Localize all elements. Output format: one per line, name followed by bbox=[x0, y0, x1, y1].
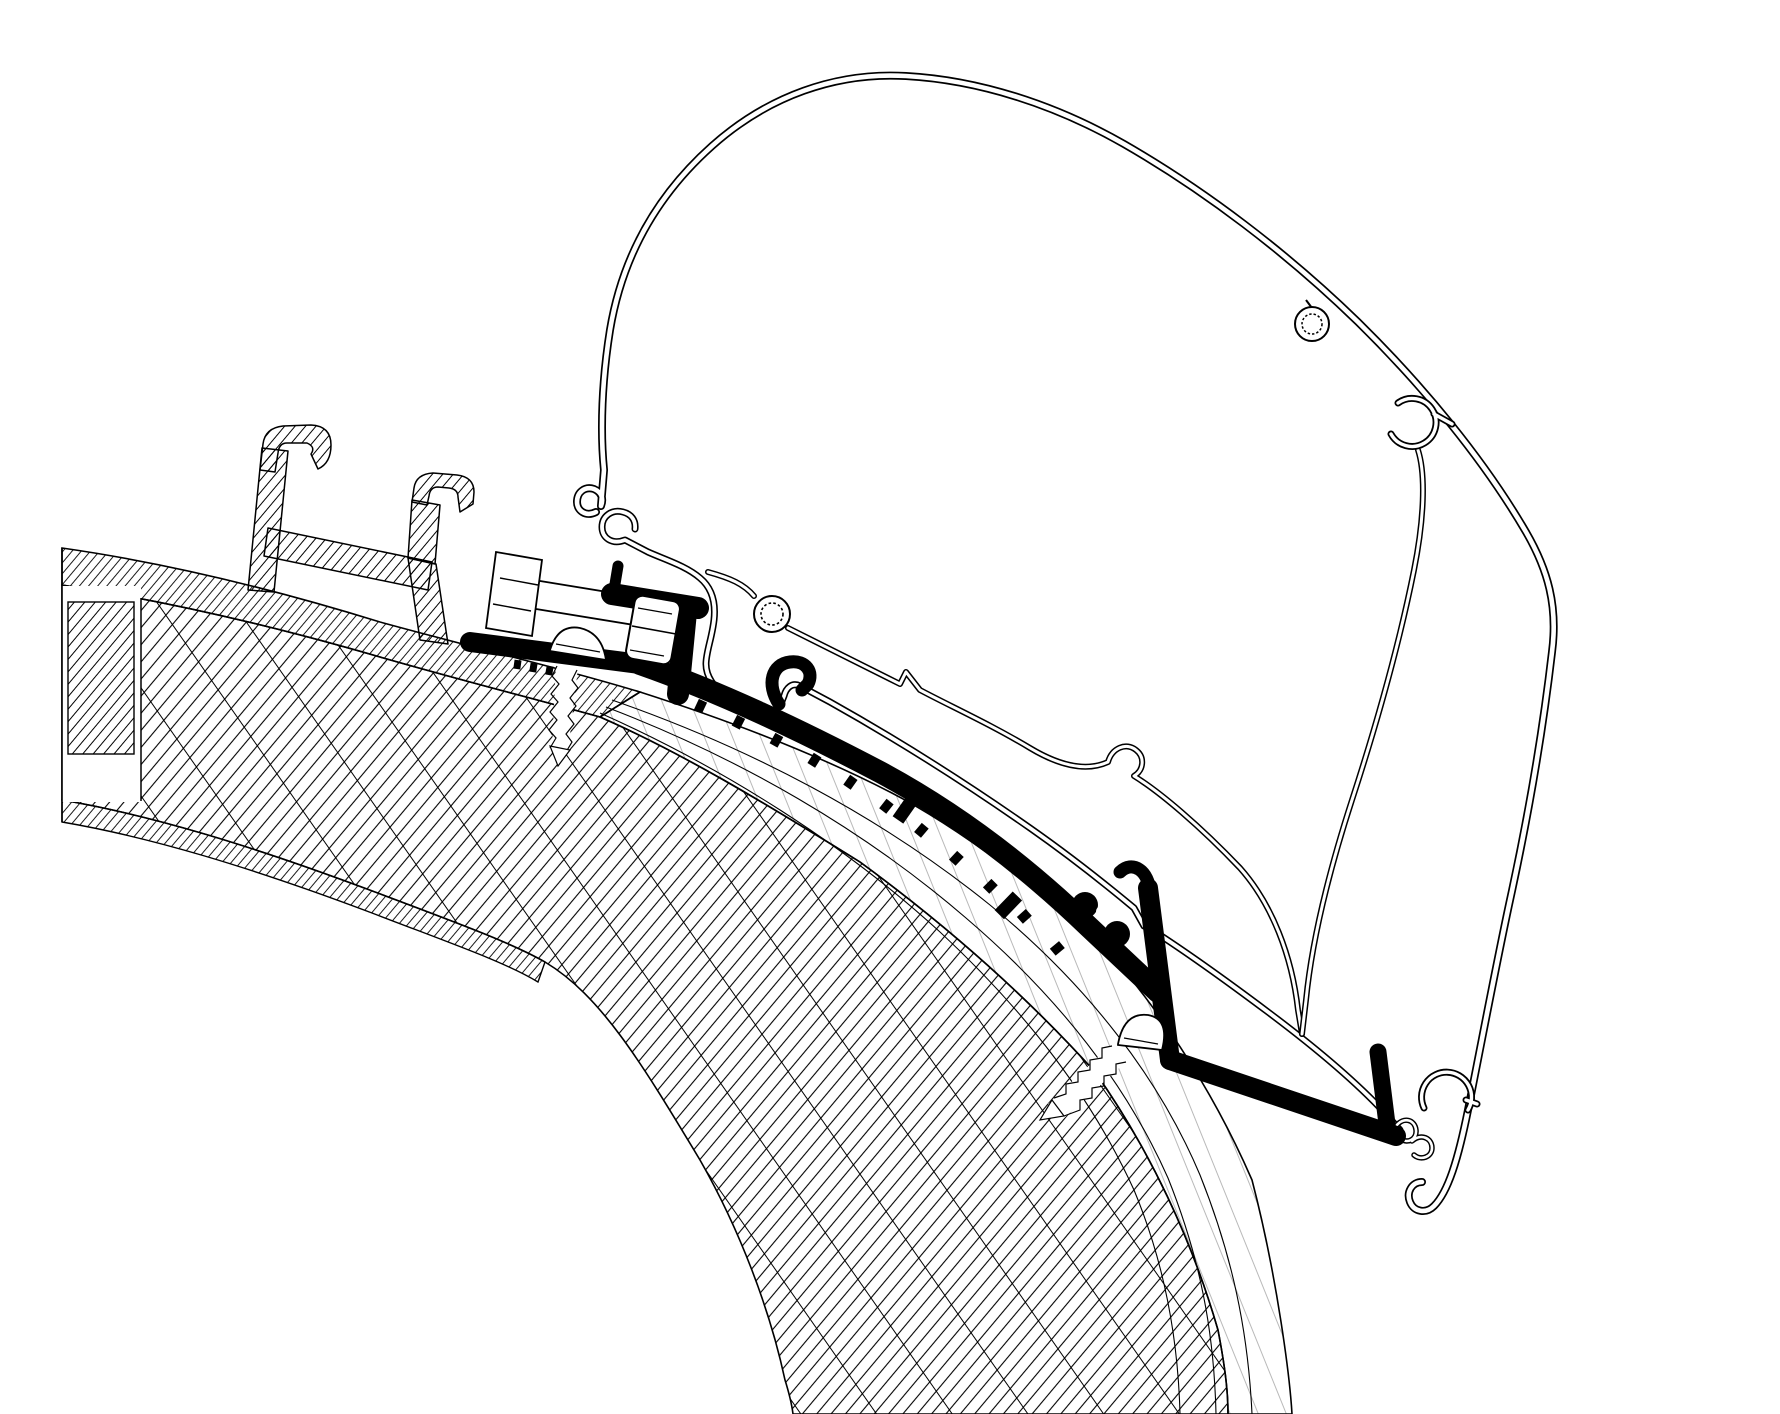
cassette-roller-catch-hook bbox=[1391, 398, 1452, 446]
roof-left-insert bbox=[68, 602, 134, 754]
clamp-nut bbox=[625, 594, 681, 665]
cassette-screw-boss bbox=[754, 596, 790, 632]
drawing-canvas bbox=[0, 0, 1780, 1414]
rail-right-leg-upper bbox=[408, 500, 440, 564]
adapter-u-channel-right-wall bbox=[1378, 1052, 1388, 1132]
cassette-screw-channel-clip bbox=[1295, 300, 1329, 341]
bolt-head bbox=[486, 552, 542, 636]
technical-drawing bbox=[0, 0, 1780, 1414]
rail-web bbox=[264, 528, 432, 590]
cassette-screw-bosses bbox=[754, 300, 1329, 632]
cassette-internal-divider-inner bbox=[1302, 450, 1423, 1034]
cassette-internal-divider bbox=[1302, 450, 1423, 1034]
adapter-rear-top-hook bbox=[1120, 867, 1150, 893]
rail-left-hook bbox=[260, 425, 331, 472]
